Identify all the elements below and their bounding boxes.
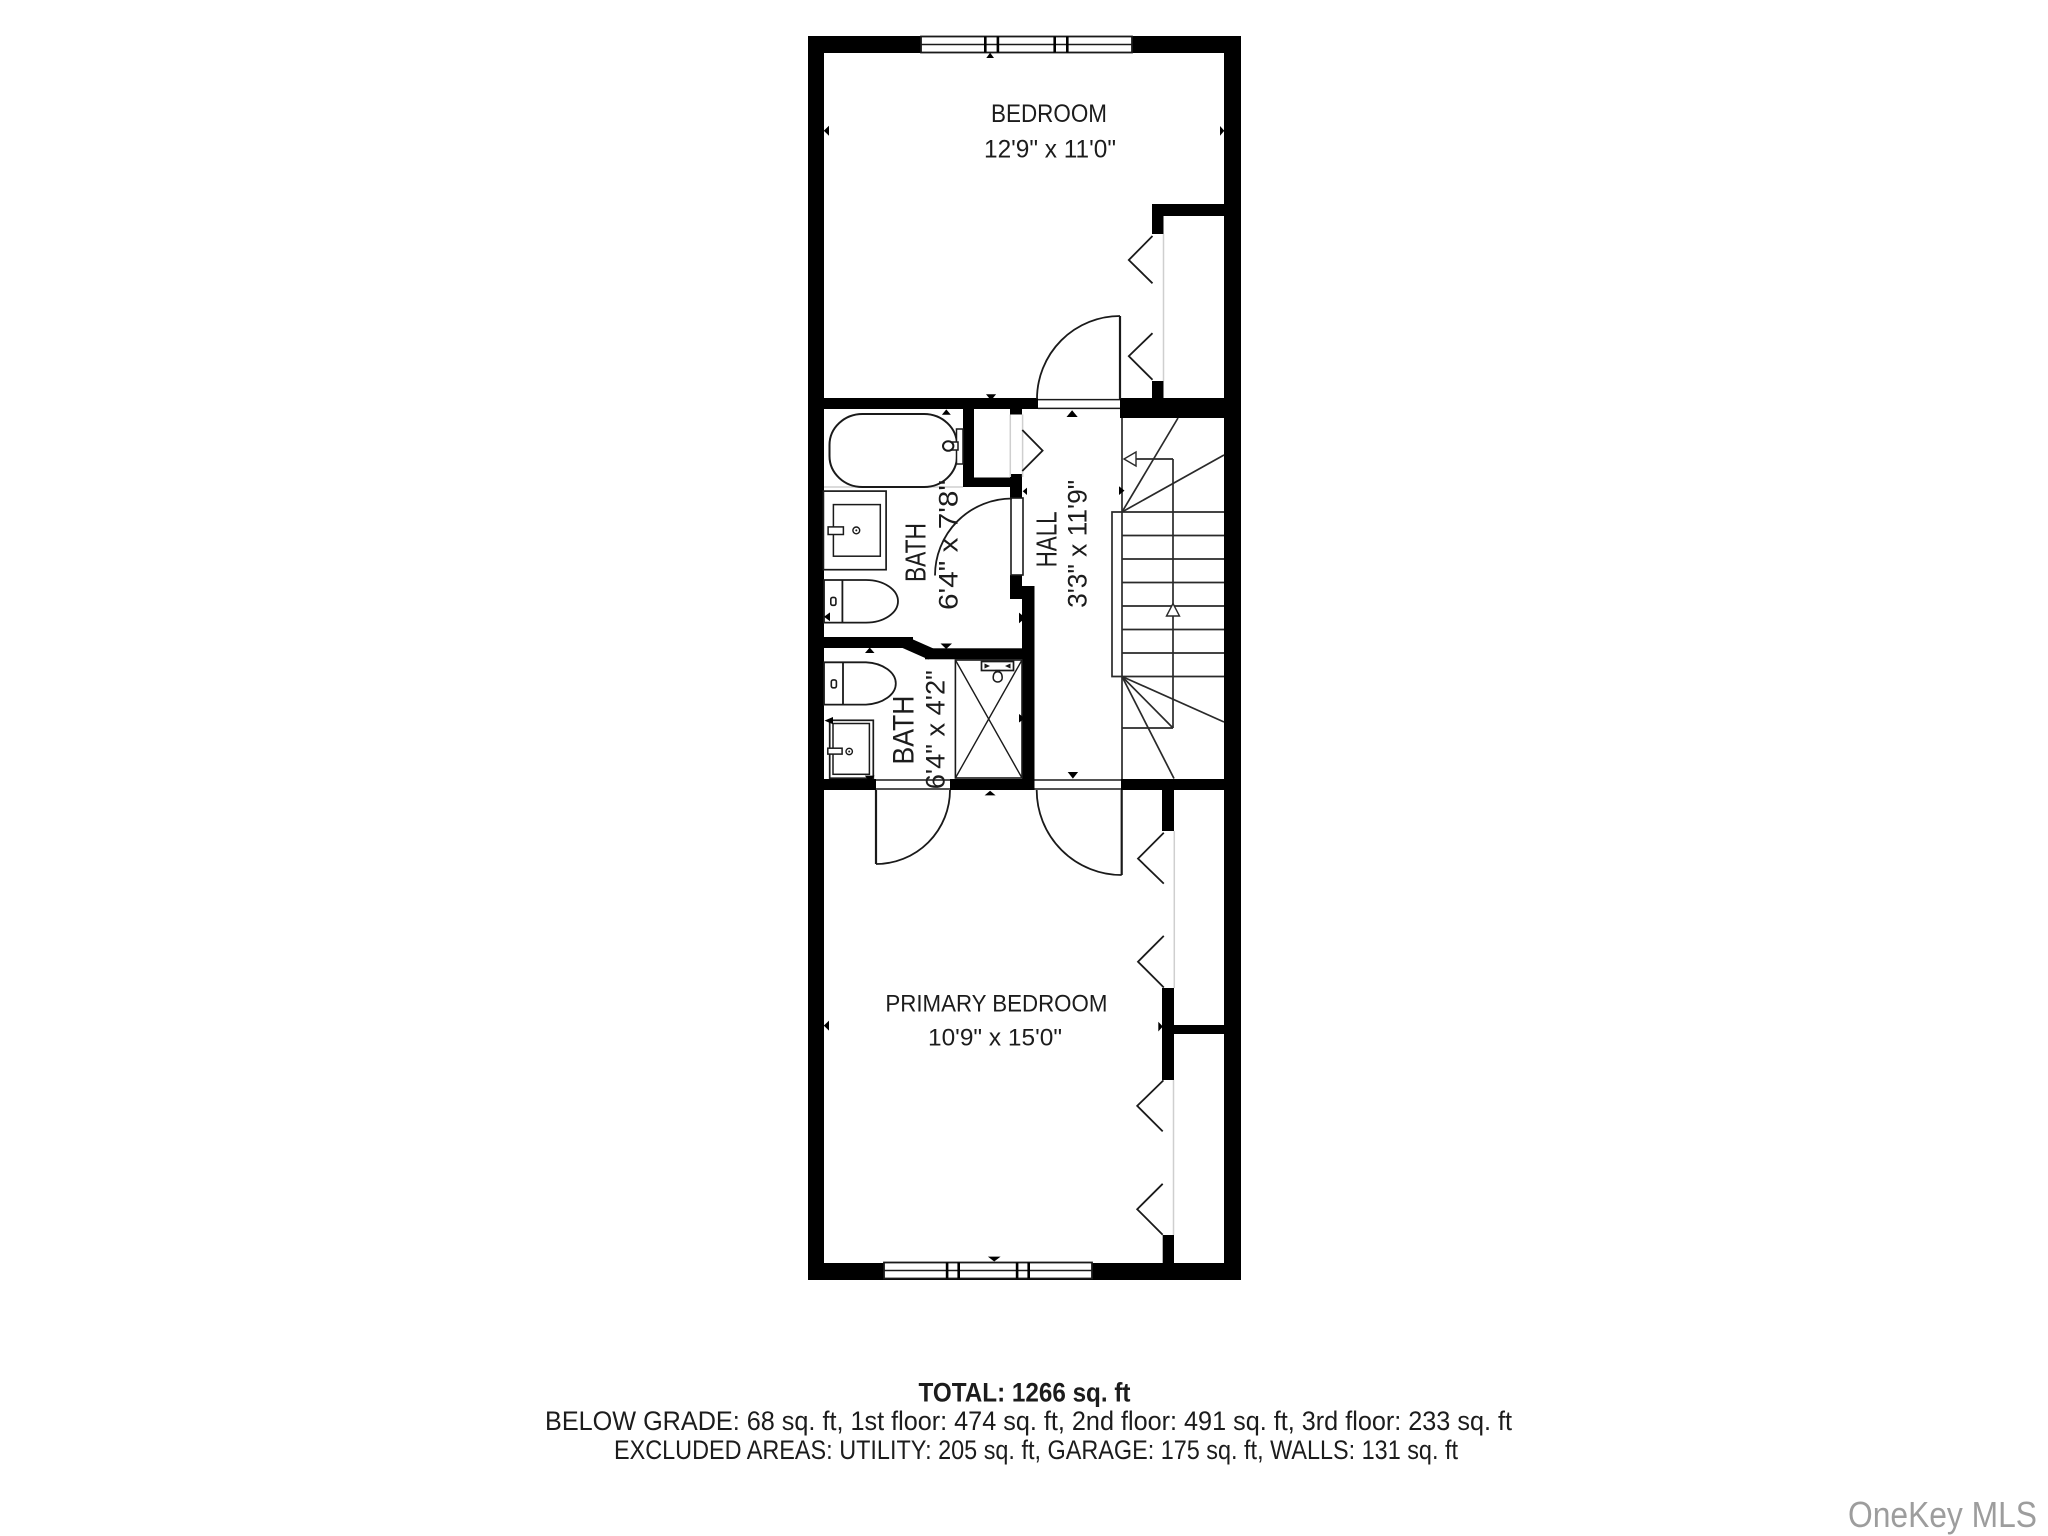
svg-text:HALL: HALL <box>1031 511 1063 567</box>
svg-text:EXCLUDED AREAS: UTILITY: 205 s: EXCLUDED AREAS: UTILITY: 205 sq. ft, GAR… <box>614 1435 1459 1465</box>
svg-text:BELOW GRADE: 68 sq. ft, 1st fl: BELOW GRADE: 68 sq. ft, 1st floor: 474 s… <box>545 1406 1513 1436</box>
svg-text:3'3" x 11'9": 3'3" x 11'9" <box>1063 480 1093 608</box>
svg-text:TOTAL: 1266 sq. ft: TOTAL: 1266 sq. ft <box>919 1378 1131 1408</box>
svg-text:12'9" x 11'0": 12'9" x 11'0" <box>984 136 1116 164</box>
svg-text:BEDROOM: BEDROOM <box>991 100 1107 128</box>
svg-text:PRIMARY BEDROOM: PRIMARY BEDROOM <box>885 991 1107 1018</box>
svg-text:6'4" x 4'2": 6'4" x 4'2" <box>920 670 950 789</box>
svg-text:BATH: BATH <box>900 523 932 582</box>
svg-text:OneKey MLS: OneKey MLS <box>1848 1494 2037 1535</box>
svg-text:BATH: BATH <box>888 696 921 765</box>
svg-text:6'4" x 7'8": 6'4" x 7'8" <box>934 480 964 610</box>
svg-text:10'9" x 15'0": 10'9" x 15'0" <box>928 1025 1062 1052</box>
